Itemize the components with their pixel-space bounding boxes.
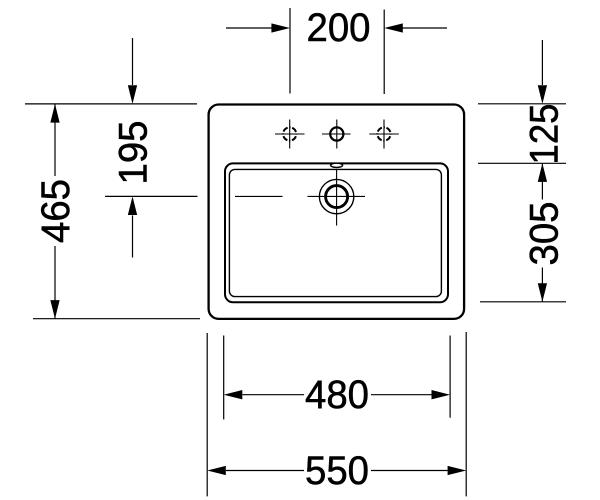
svg-text:305: 305: [522, 202, 566, 266]
svg-text:550: 550: [305, 449, 369, 493]
svg-text:195: 195: [111, 121, 155, 185]
svg-text:125: 125: [522, 104, 566, 165]
svg-text:465: 465: [34, 179, 78, 243]
svg-text:200: 200: [307, 6, 371, 50]
svg-text:480: 480: [305, 373, 369, 417]
